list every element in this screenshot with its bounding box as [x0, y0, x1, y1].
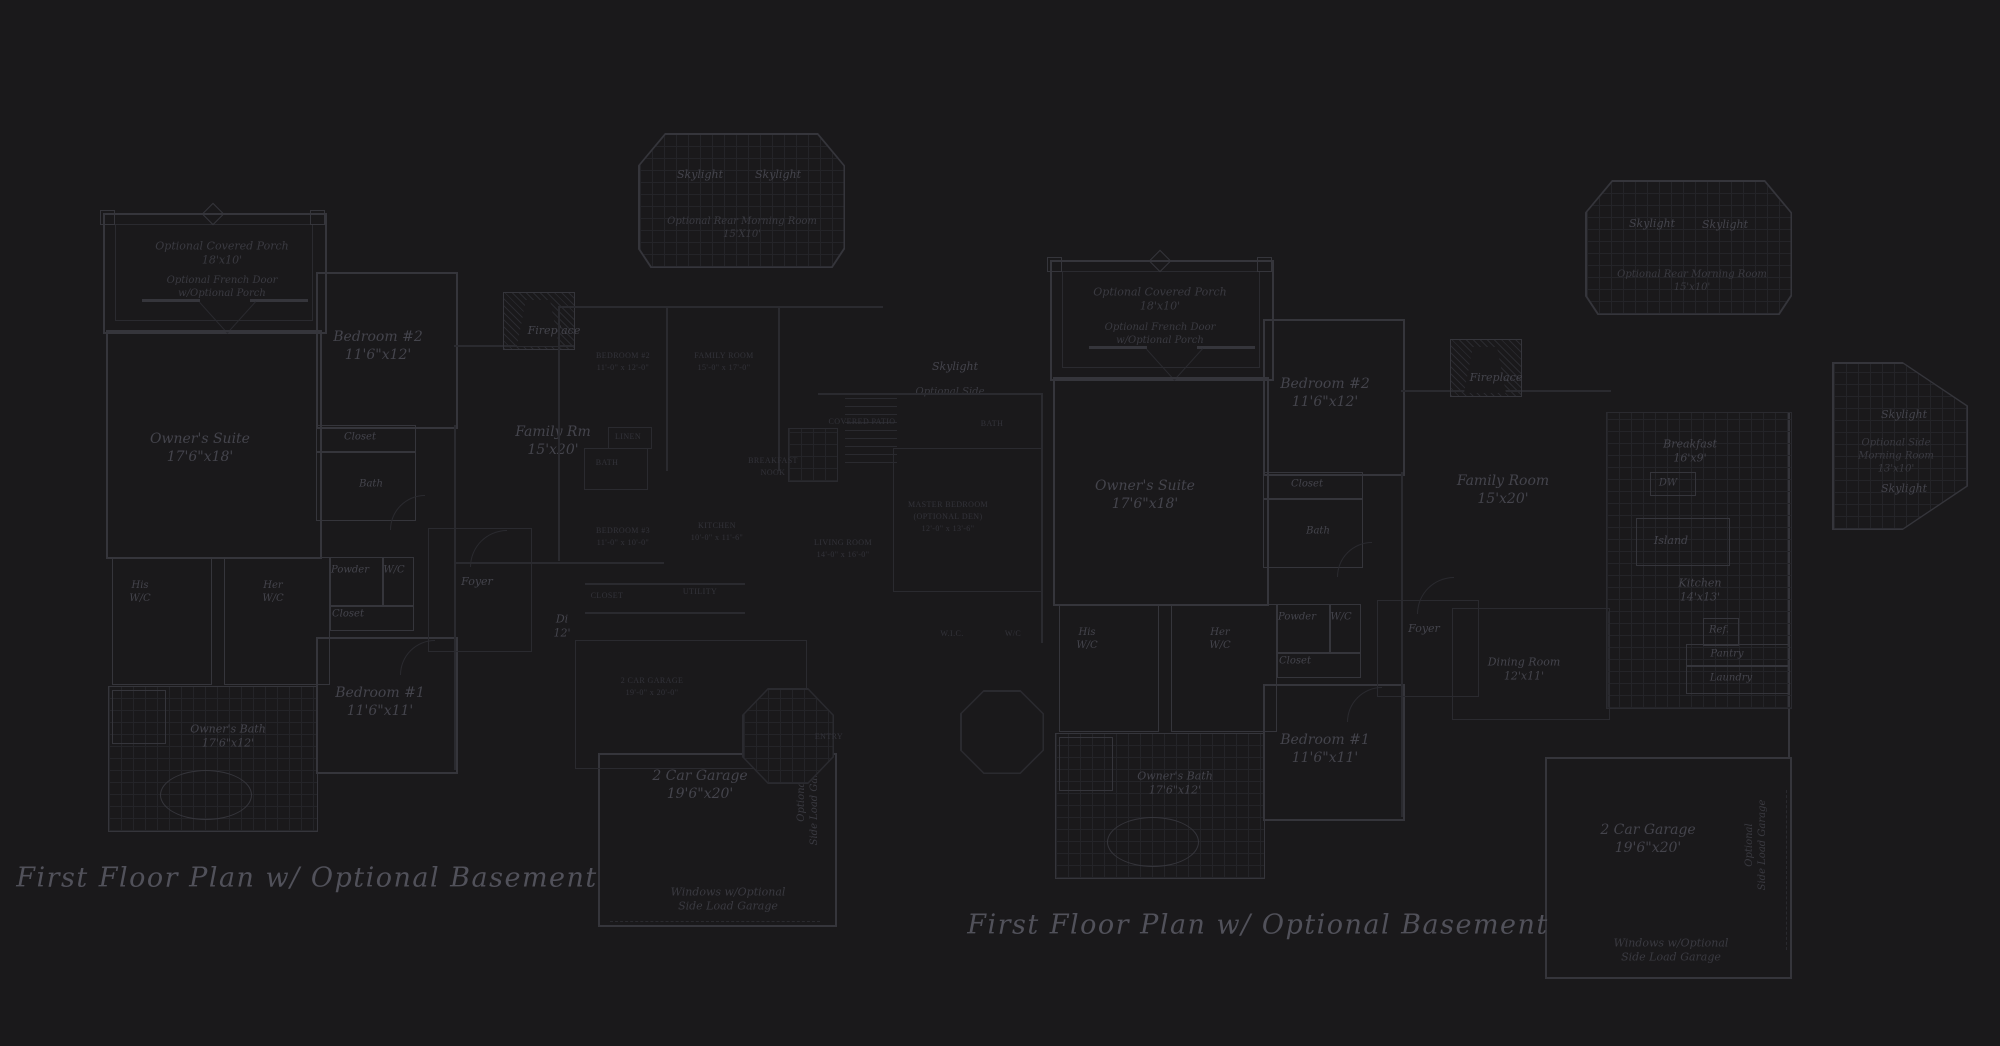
caps-label-wc: W/C: [1005, 628, 1021, 640]
label-ref: Ref.: [1709, 624, 1729, 637]
room-her-wc: [224, 557, 330, 685]
label-her-wc: Her W/C: [1209, 626, 1230, 652]
caps-label-bedroom2: BEDROOM #2 11'-0" x 12'-0": [596, 350, 650, 374]
label-foyer: Foyer: [461, 575, 493, 589]
label-covered-porch: Optional Covered Porch 18'x10': [155, 240, 288, 269]
wall-segment: [666, 306, 668, 471]
label-dining-partial: Di 12': [553, 613, 570, 642]
caps-label-entry: ENTRY: [815, 731, 843, 743]
shower: [112, 690, 166, 744]
bathtub: [160, 770, 252, 820]
left-plan-title: First Floor Plan w/ Optional Basement: [16, 863, 598, 894]
label-island: Island: [1654, 534, 1688, 548]
label-wc: W/C: [1330, 611, 1351, 624]
caps-label-wic: W.I.C.: [940, 628, 963, 640]
porch-post: [1047, 257, 1062, 272]
caps-label-utility: UTILITY: [683, 586, 717, 598]
label-laundry: Laundry: [1710, 672, 1752, 685]
shower: [1059, 737, 1113, 791]
floor-plan-canvas: Optional Covered Porch 18'x10' Optional …: [0, 0, 2000, 1046]
bay-small: [960, 690, 1044, 774]
label-side-skylight: Skylight: [932, 360, 978, 374]
label-her-wc: Her W/C: [262, 579, 283, 605]
caps-label-bedroom3: BEDROOM #3 11'-0" x 10'-0": [596, 525, 650, 549]
wall-segment: [558, 306, 560, 561]
label-family-room: Family Room 15'x20': [1457, 472, 1549, 508]
sunroom-shape: [1585, 180, 1792, 315]
label-foyer: Foyer: [1408, 622, 1440, 636]
label-closet: Closet: [1291, 478, 1323, 491]
label-breakfast: Breakfast 16'x9': [1663, 438, 1717, 467]
caps-label-closet: CLOSET: [591, 590, 624, 602]
label-side-morning: Optional Side Morning Room 13'x10': [1858, 437, 1934, 476]
label-windows-note: Windows w/Optional Side Load Garage: [671, 886, 786, 915]
label-french-door: Optional French Door w/Optional Porch: [167, 274, 278, 300]
wall-segment: [778, 306, 780, 471]
label-his-wc: His W/C: [1076, 626, 1097, 652]
bathtub: [1107, 817, 1199, 867]
wall-segment: [454, 425, 456, 770]
garage-door-dashed: [1786, 790, 1787, 950]
room-his-wc: [112, 557, 212, 685]
label-dw: DW: [1659, 477, 1677, 490]
label-side-load-vertical: Optional Side Load Garage: [1743, 800, 1769, 891]
label-closet2: Closet: [332, 608, 364, 621]
label-fireplace: Fireplace: [1470, 371, 1523, 385]
sunroom-shape: [638, 133, 845, 268]
label-side-morning: Optional Side: [916, 386, 985, 399]
label-dining: Dining Room 12'x11': [1488, 656, 1561, 685]
caps-label-family-room: FAMILY ROOM 15'-0" x 17'-0": [694, 350, 753, 374]
porch-post: [100, 210, 115, 225]
label-bedroom2: Bedroom #2 11'6"x12': [333, 328, 422, 364]
label-skylight: Skylight: [677, 168, 723, 182]
porch-post: [1257, 257, 1272, 272]
caps-label-linen: LINEN: [615, 431, 641, 443]
label-rear-morning-room: Optional Rear Morning Room 15'x10': [1617, 268, 1767, 294]
label-skylight: Skylight: [755, 168, 801, 182]
wall-segment: [558, 306, 883, 308]
label-side-skylight1: Skylight: [1881, 408, 1927, 422]
label-powder: Powder: [331, 564, 369, 577]
label-closet2: Closet: [1279, 655, 1311, 668]
door-arc: [1417, 577, 1454, 614]
label-pantry: Pantry: [1710, 648, 1743, 661]
stairs: [845, 398, 897, 468]
sunroom-floor: [640, 135, 844, 267]
bath-outline: [584, 448, 648, 490]
wall-segment: [1041, 393, 1043, 643]
label-his-wc: His W/C: [129, 579, 150, 605]
label-powder: Powder: [1278, 611, 1316, 624]
bay-small-floor: [962, 692, 1043, 773]
right-plan-title: First Floor Plan w/ Optional Basement: [967, 910, 1549, 941]
label-french-door: Optional French Door w/Optional Porch: [1105, 321, 1216, 347]
caps-label-living-room: LIVING ROOM 14'-0" x 16'-0": [814, 537, 872, 561]
label-skylight: Skylight: [1702, 218, 1748, 232]
caps-label-kitchen: KITCHEN 10'-0" x 11'-6": [691, 520, 743, 544]
label-family-rm: Family Rm 15'x20': [515, 423, 591, 459]
label-owners-suite: Owner's Suite 17'6"x18': [150, 430, 250, 466]
label-owners-bath: Owner's Bath 17'6"x12': [1137, 770, 1213, 799]
label-bath: Bath: [1306, 525, 1330, 538]
wall-segment: [818, 393, 1042, 395]
wall-segment: [585, 612, 745, 614]
garage-door-dashed: [610, 921, 820, 922]
label-closet: Closet: [344, 431, 376, 444]
label-wc: W/C: [383, 564, 404, 577]
caps-label-breakfast-nook: BREAKFAST NOOK: [748, 455, 798, 479]
caps-label-master: MASTER BEDROOM (OPTIONAL DEN) 12'-0" x 1…: [908, 499, 988, 535]
label-bedroom2: Bedroom #2 11'6"x12': [1280, 375, 1369, 411]
label-garage: 2 Car Garage 19'6"x20': [1600, 821, 1695, 857]
wall-segment: [585, 583, 745, 585]
label-bath: Bath: [359, 478, 383, 491]
label-owners-bath: Owner's Bath 17'6"x12': [190, 723, 266, 752]
label-garage: 2 Car Garage 19'6"x20': [652, 767, 747, 803]
label-fireplace: Fireplace: [528, 324, 581, 338]
porch-inner-outline: [115, 224, 313, 321]
label-owners-suite: Owner's Suite 17'6"x18': [1095, 477, 1195, 513]
label-bedroom1: Bedroom #1 11'6"x11': [1280, 731, 1369, 767]
label-kitchen: Kitchen 14'x13': [1679, 577, 1722, 606]
label-rear-morning-room: Optional Rear Morning Room 15'X10': [667, 215, 817, 241]
label-windows-note: Windows w/Optional Side Load Garage: [1614, 937, 1729, 966]
caps-label-bath-upper: BATH: [596, 457, 619, 469]
caps-label-garage: 2 CAR GARAGE 19'-0" x 20'-0": [621, 675, 684, 699]
caps-label-bath-right: BATH: [981, 418, 1004, 430]
label-skylight: Skylight: [1629, 217, 1675, 231]
room-her-wc: [1171, 604, 1277, 732]
room-his-wc: [1059, 604, 1159, 732]
porch-post: [310, 210, 325, 225]
label-side-skylight2: Skylight: [1881, 482, 1927, 496]
label-covered-porch: Optional Covered Porch 18'x10': [1093, 286, 1226, 315]
label-bedroom1: Bedroom #1 11'6"x11': [335, 684, 424, 720]
wall-segment: [1401, 472, 1403, 817]
caps-label-covered-patio: COVERED PATIO: [829, 416, 896, 428]
